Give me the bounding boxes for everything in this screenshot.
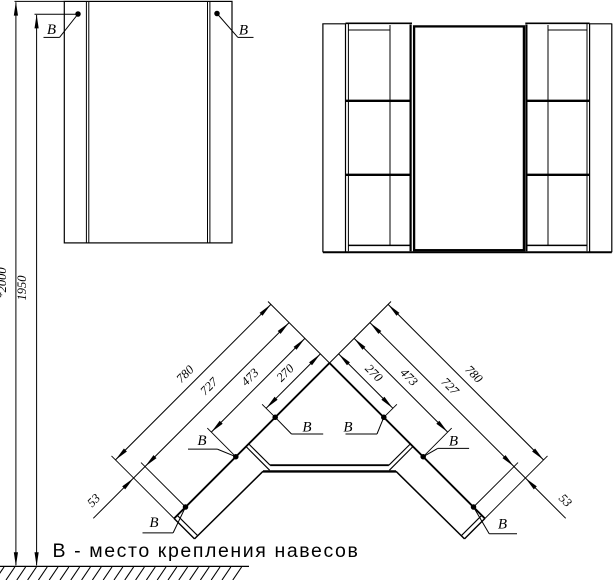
svg-text:В: В (149, 515, 158, 531)
svg-text:В: В (239, 23, 248, 39)
svg-text:В: В (343, 420, 352, 436)
svg-text:В - место крепления навесов: В - место крепления навесов (53, 540, 360, 562)
svg-text:В: В (197, 433, 206, 449)
svg-text:В: В (47, 22, 56, 38)
svg-text:В: В (498, 517, 507, 533)
svg-text:В: В (449, 434, 458, 450)
svg-text:В: В (302, 420, 311, 436)
svg-text:*2000: *2000 (0, 267, 9, 299)
svg-text:1950: 1950 (15, 275, 29, 301)
